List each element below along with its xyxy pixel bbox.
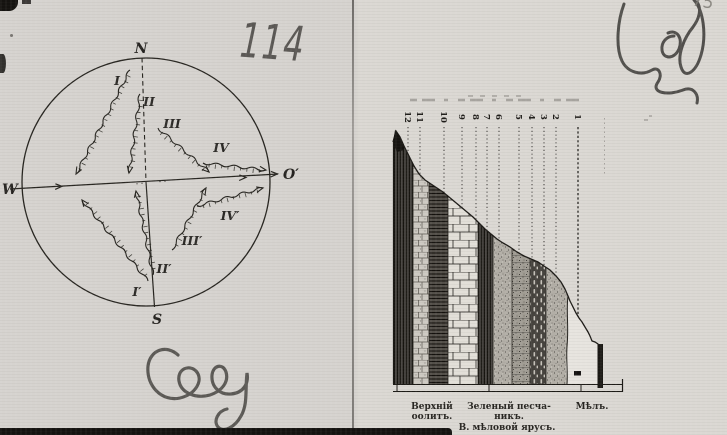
pencil-scribbles-svg bbox=[0, 0, 727, 435]
scan-bottom-edge bbox=[0, 428, 452, 435]
scanned-page: N W O′ S I II III IV I′ II′ III′ IV′ bbox=[0, 0, 727, 435]
scan-corner-mark bbox=[22, 0, 31, 4]
pencil-scribble-top-right bbox=[618, 0, 704, 103]
pencil-scribble-bottom-left bbox=[148, 349, 248, 429]
handwritten-page-number: 114 bbox=[234, 12, 311, 73]
scan-speck bbox=[10, 34, 13, 37]
page-fold-line bbox=[352, 0, 354, 435]
scan-edge-mark bbox=[0, 54, 6, 73]
